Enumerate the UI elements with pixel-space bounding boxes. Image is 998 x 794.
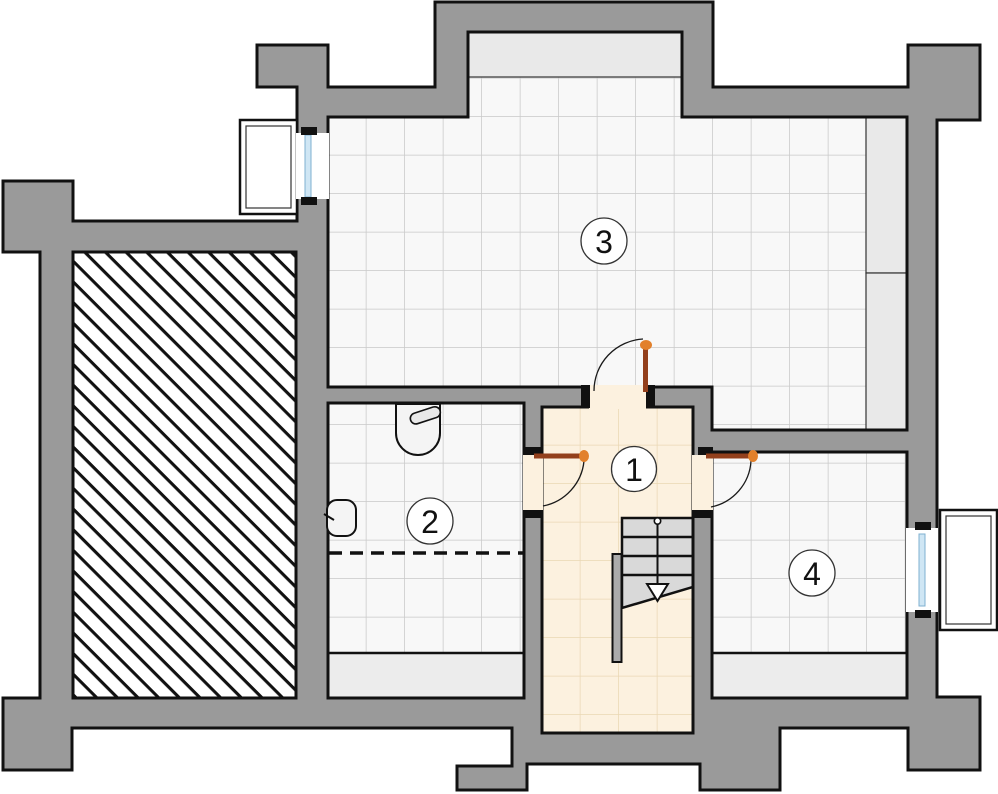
doorway-floor	[523, 455, 543, 510]
footing-strip-left	[328, 653, 524, 698]
room-number: 4	[803, 556, 821, 592]
toilet-icon	[324, 500, 356, 536]
doorway-floor	[692, 455, 713, 510]
pivot-dot-icon	[640, 340, 652, 350]
door-jamb	[523, 510, 542, 518]
doorway-floor	[589, 385, 646, 409]
stair-guide-origin	[654, 518, 660, 524]
window-opening	[296, 133, 329, 199]
handrail	[613, 554, 622, 662]
room-number: 3	[595, 224, 613, 260]
duct-strip-upper	[866, 117, 907, 273]
window-jamb	[915, 610, 931, 618]
pivot-dot-icon	[579, 450, 589, 462]
window-jamb	[915, 522, 931, 530]
glazing	[919, 534, 925, 606]
floor-plan-page: 1 2 3 4	[0, 0, 998, 794]
glazing	[305, 135, 311, 197]
room-label-3: 3	[581, 218, 627, 264]
washbasin-icon	[396, 404, 442, 455]
door-jamb	[694, 510, 713, 518]
top-alcove-strip	[468, 32, 682, 77]
floor-plan: 1 2 3 4	[0, 0, 998, 794]
window-jamb	[301, 127, 317, 135]
window-well	[940, 510, 997, 630]
pivot-dot-icon	[748, 450, 758, 462]
window-right	[906, 510, 997, 630]
window-well	[240, 120, 297, 214]
room-number: 2	[421, 504, 439, 540]
duct-strip-lower	[866, 273, 907, 430]
room-label-4: 4	[789, 550, 835, 596]
room-number: 1	[625, 452, 643, 488]
door-jamb	[581, 385, 590, 408]
hatched-area	[73, 252, 296, 698]
window-left	[240, 120, 329, 214]
room-label-2: 2	[407, 498, 453, 544]
footing-strip-right	[712, 653, 907, 698]
window-jamb	[301, 197, 317, 205]
room-label-1: 1	[612, 447, 657, 492]
